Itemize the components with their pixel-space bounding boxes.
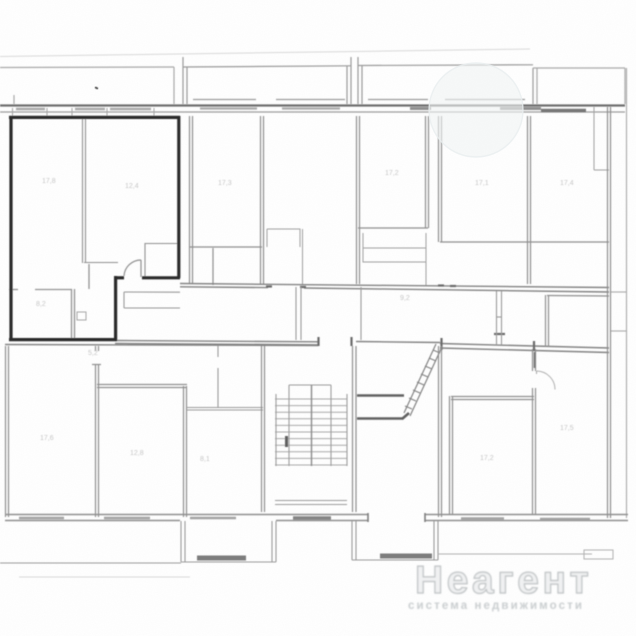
svg-text:17,1: 17,1 bbox=[475, 180, 489, 187]
svg-text:8,1: 8,1 bbox=[200, 456, 210, 463]
svg-text:17,2: 17,2 bbox=[480, 455, 494, 462]
svg-text:17,2: 17,2 bbox=[385, 170, 399, 177]
svg-text:8,2: 8,2 bbox=[36, 301, 46, 308]
svg-text:9,2: 9,2 bbox=[400, 295, 410, 302]
svg-text:17,8: 17,8 bbox=[42, 178, 56, 185]
svg-text:17,6: 17,6 bbox=[40, 435, 54, 442]
svg-text:5,2: 5,2 bbox=[88, 350, 98, 357]
svg-text:12,4: 12,4 bbox=[125, 183, 139, 190]
svg-text:17,4: 17,4 bbox=[560, 180, 574, 187]
svg-text:17,5: 17,5 bbox=[560, 425, 574, 432]
svg-text:17,3: 17,3 bbox=[218, 180, 232, 187]
svg-text:Неагент: Неагент bbox=[415, 559, 592, 602]
svg-text:система недвижимости: система недвижимости bbox=[408, 600, 584, 612]
svg-text:12,8: 12,8 bbox=[130, 450, 144, 457]
